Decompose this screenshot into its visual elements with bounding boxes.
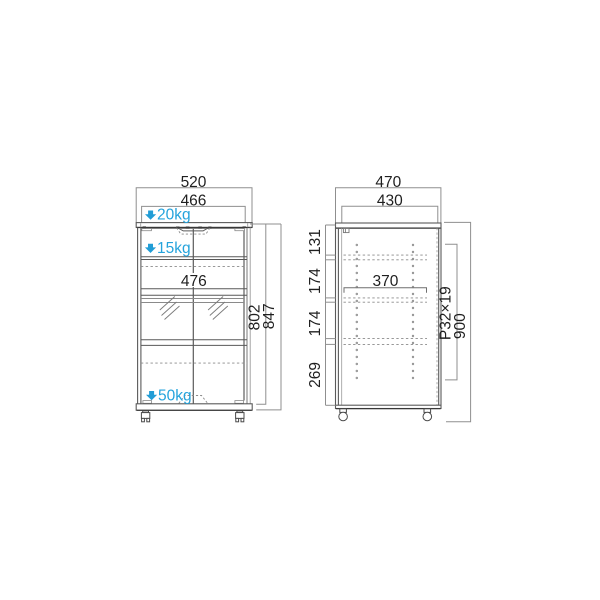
svg-text:20kg: 20kg [157,206,191,223]
svg-text:470: 470 [375,174,401,191]
svg-text:131: 131 [307,229,324,255]
svg-text:174: 174 [307,310,324,336]
svg-text:50kg: 50kg [158,387,192,404]
svg-text:900: 900 [452,313,469,339]
svg-text:520: 520 [181,174,207,191]
svg-text:15kg: 15kg [157,240,191,257]
svg-text:370: 370 [372,273,398,290]
svg-text:430: 430 [377,192,403,209]
svg-text:847: 847 [261,303,278,329]
svg-text:174: 174 [307,268,324,294]
svg-text:269: 269 [307,362,324,388]
svg-text:476: 476 [181,273,207,290]
